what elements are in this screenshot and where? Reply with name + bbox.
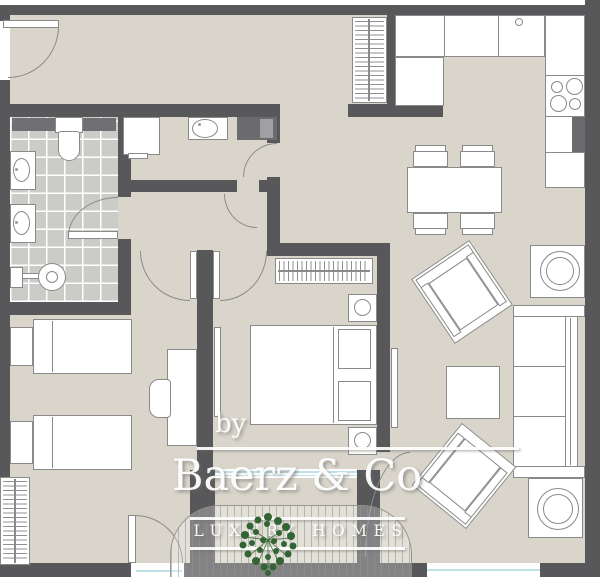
pillow-1 — [338, 329, 371, 369]
kitchen-faucet — [515, 18, 523, 26]
laundry-basin-bowl — [192, 119, 218, 138]
laundry-basin-drain — [198, 123, 201, 126]
sink-1-drain — [15, 168, 18, 171]
wall-bedroom-divider — [197, 250, 213, 470]
wall-master-top — [267, 243, 383, 256]
twin-bed-1-line — [52, 321, 53, 372]
burner-bottom-left — [550, 95, 567, 112]
burner-top-right — [566, 78, 583, 95]
dining-chair-2-seat — [460, 151, 495, 167]
tree-logo-icon — [238, 510, 302, 577]
balcony-glass-line — [427, 569, 540, 571]
twin-bed-1 — [33, 319, 132, 374]
hall-closet-rail — [368, 19, 370, 101]
tv-living — [391, 348, 398, 428]
dining-chair-4-back — [462, 228, 493, 235]
toilet-bowl — [58, 131, 80, 161]
twin-wardrobe-rail — [14, 479, 16, 563]
twin-bed-2 — [33, 415, 132, 470]
sofa-back — [565, 316, 578, 467]
double-bed-line — [333, 327, 334, 423]
nightstand-1-lamp — [354, 299, 371, 316]
twin-bed-2-headboard — [10, 421, 33, 464]
wall-left-upper — [0, 5, 10, 21]
wall-closet-divider — [387, 15, 395, 104]
master-bedroom-door-leaf — [213, 251, 220, 299]
sofa-seat-line-1 — [514, 366, 565, 367]
laundry-shelf-inner — [260, 119, 273, 138]
kitchen-lower-cabinet — [395, 57, 444, 106]
wall-hall-bathroom — [10, 104, 280, 117]
desk — [167, 349, 197, 446]
plant-1-inner — [546, 257, 574, 285]
dining-chair-1-seat — [413, 151, 448, 167]
wall-bottom-left — [0, 563, 131, 577]
dining-table — [407, 167, 502, 213]
floor-plan: by Baerz & Co LUXURY HOMES — [0, 0, 600, 577]
burner-bottom-right — [569, 98, 581, 110]
twin-bed-1-headboard — [10, 327, 33, 366]
plant-2-inner — [543, 494, 573, 524]
desk-chair — [149, 379, 171, 418]
wall-right — [585, 0, 600, 577]
dining-chair-4-seat — [460, 213, 495, 229]
dining-chair-3-back — [415, 228, 446, 235]
hall-closet-hangers — [355, 21, 384, 99]
kitchen-counter-right-seam — [546, 152, 584, 153]
twin-bedroom-door-leaf — [190, 251, 197, 299]
washing-machine — [123, 117, 160, 155]
sink-2-drain — [15, 221, 18, 224]
sofa-seat-line-2 — [514, 416, 565, 417]
wall-laundry-bottom-left — [118, 180, 237, 192]
pillow-2 — [338, 381, 371, 421]
kitchen-counter-seam — [444, 16, 445, 56]
watermark-brand: Baerz & Co — [172, 452, 422, 501]
watermark-top-rule — [197, 447, 519, 450]
coffee-table — [446, 366, 500, 419]
master-tv — [214, 327, 221, 417]
washing-machine-tab — [128, 153, 148, 159]
sofa-back-line — [570, 318, 571, 465]
wall-bathroom-bottom — [0, 302, 131, 315]
burner-top-left — [551, 81, 563, 93]
shower-head-inner — [46, 271, 58, 283]
twin-bed-2-line — [52, 417, 53, 468]
wall-top — [0, 5, 600, 15]
wall-bottom-right — [540, 563, 585, 577]
oven-unit — [572, 117, 585, 152]
sofa-seats — [513, 316, 566, 467]
sofa-armrest-bottom — [513, 466, 585, 478]
dining-chair-3-seat — [413, 213, 448, 229]
watermark-by: by — [215, 409, 246, 439]
wall-master-living — [377, 243, 390, 452]
master-wardrobe-rail — [278, 270, 370, 272]
